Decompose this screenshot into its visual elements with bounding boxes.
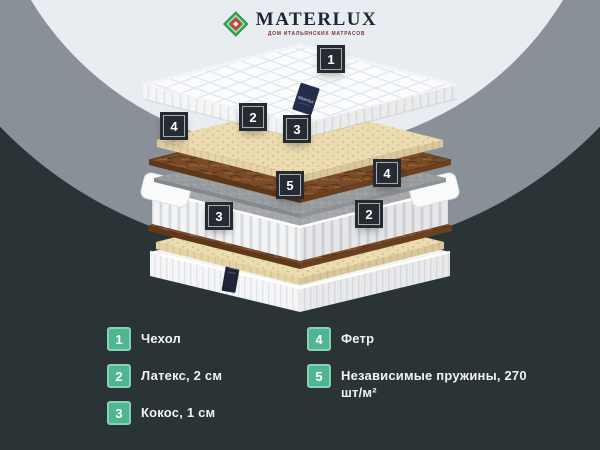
callout-coconut-bottom: 3 bbox=[208, 205, 230, 227]
brand-tagline: ДОМ ИТАЛЬЯНСКИХ МАТРАСОВ bbox=[268, 31, 365, 37]
legend-badge-1: 1 bbox=[107, 327, 131, 351]
legend-label-springs: Независимые пружины, 270 шт/м² bbox=[341, 364, 541, 402]
callout-felt-top: 4 bbox=[163, 115, 185, 137]
callout-coconut-top: 3 bbox=[286, 118, 308, 140]
legend-item-springs: 5 Независимые пружины, 270 шт/м² bbox=[307, 364, 541, 402]
legend-label-felt: Фетр bbox=[341, 327, 374, 348]
legend-badge-2: 2 bbox=[107, 364, 131, 388]
brand-name: MATERLUX bbox=[256, 10, 377, 29]
legend-label-coconut: Кокос, 1 см bbox=[141, 401, 215, 422]
legend-badge-4: 4 bbox=[307, 327, 331, 351]
callout-cover: 1 bbox=[320, 48, 342, 70]
callout-springs: 5 bbox=[279, 174, 301, 196]
callout-latex-bottom: 2 bbox=[358, 203, 380, 225]
legend-badge-3: 3 bbox=[107, 401, 131, 425]
callout-latex-top: 2 bbox=[242, 106, 264, 128]
legend-label-cover: Чехол bbox=[141, 327, 181, 348]
legend-item-latex: 2 Латекс, 2 см bbox=[107, 364, 222, 388]
brand-logo: MATERLUX ДОМ ИТАЛЬЯНСКИХ МАТРАСОВ bbox=[223, 10, 377, 37]
legend-item-cover: 1 Чехол bbox=[107, 327, 181, 351]
brand-logo-mark-icon bbox=[223, 11, 249, 37]
callout-felt-bottom: 4 bbox=[376, 162, 398, 184]
legend-badge-5: 5 bbox=[307, 364, 331, 388]
mattress-infographic: MATERLUX ДОМ ИТАЛЬЯНСКИХ МАТРАСОВ bbox=[0, 0, 600, 450]
legend-label-latex: Латекс, 2 см bbox=[141, 364, 222, 385]
legend-item-coconut: 3 Кокос, 1 см bbox=[107, 401, 215, 425]
legend-item-felt: 4 Фетр bbox=[307, 327, 374, 351]
